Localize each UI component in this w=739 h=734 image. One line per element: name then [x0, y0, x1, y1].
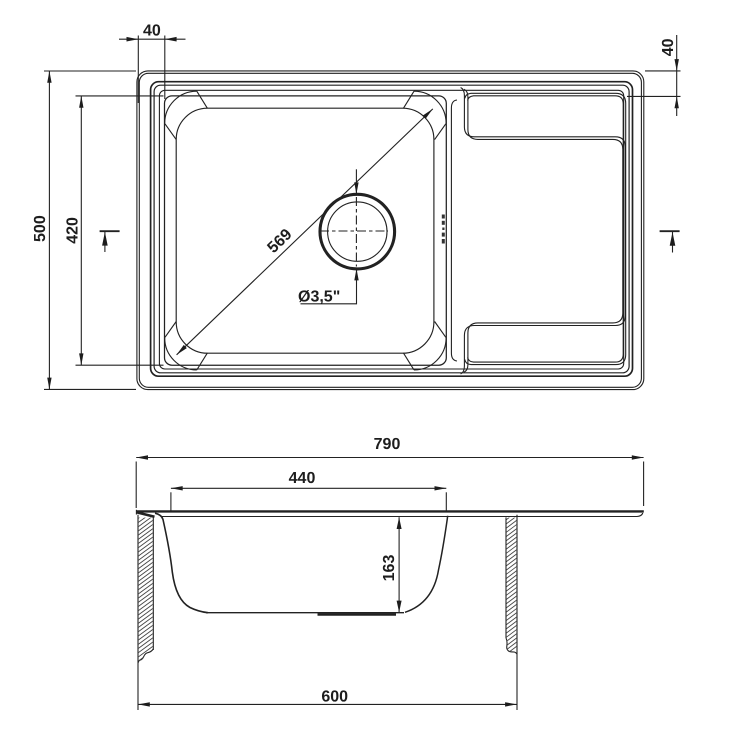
- svg-text:500: 500: [32, 215, 49, 242]
- svg-text:600: 600: [321, 688, 348, 705]
- svg-text:790: 790: [374, 436, 401, 453]
- svg-text:40: 40: [660, 38, 677, 56]
- svg-text:440: 440: [289, 470, 316, 487]
- svg-text:Ø3,5": Ø3,5": [298, 288, 340, 305]
- svg-text:163: 163: [381, 555, 398, 582]
- svg-text:40: 40: [143, 22, 161, 39]
- svg-text:420: 420: [65, 217, 82, 244]
